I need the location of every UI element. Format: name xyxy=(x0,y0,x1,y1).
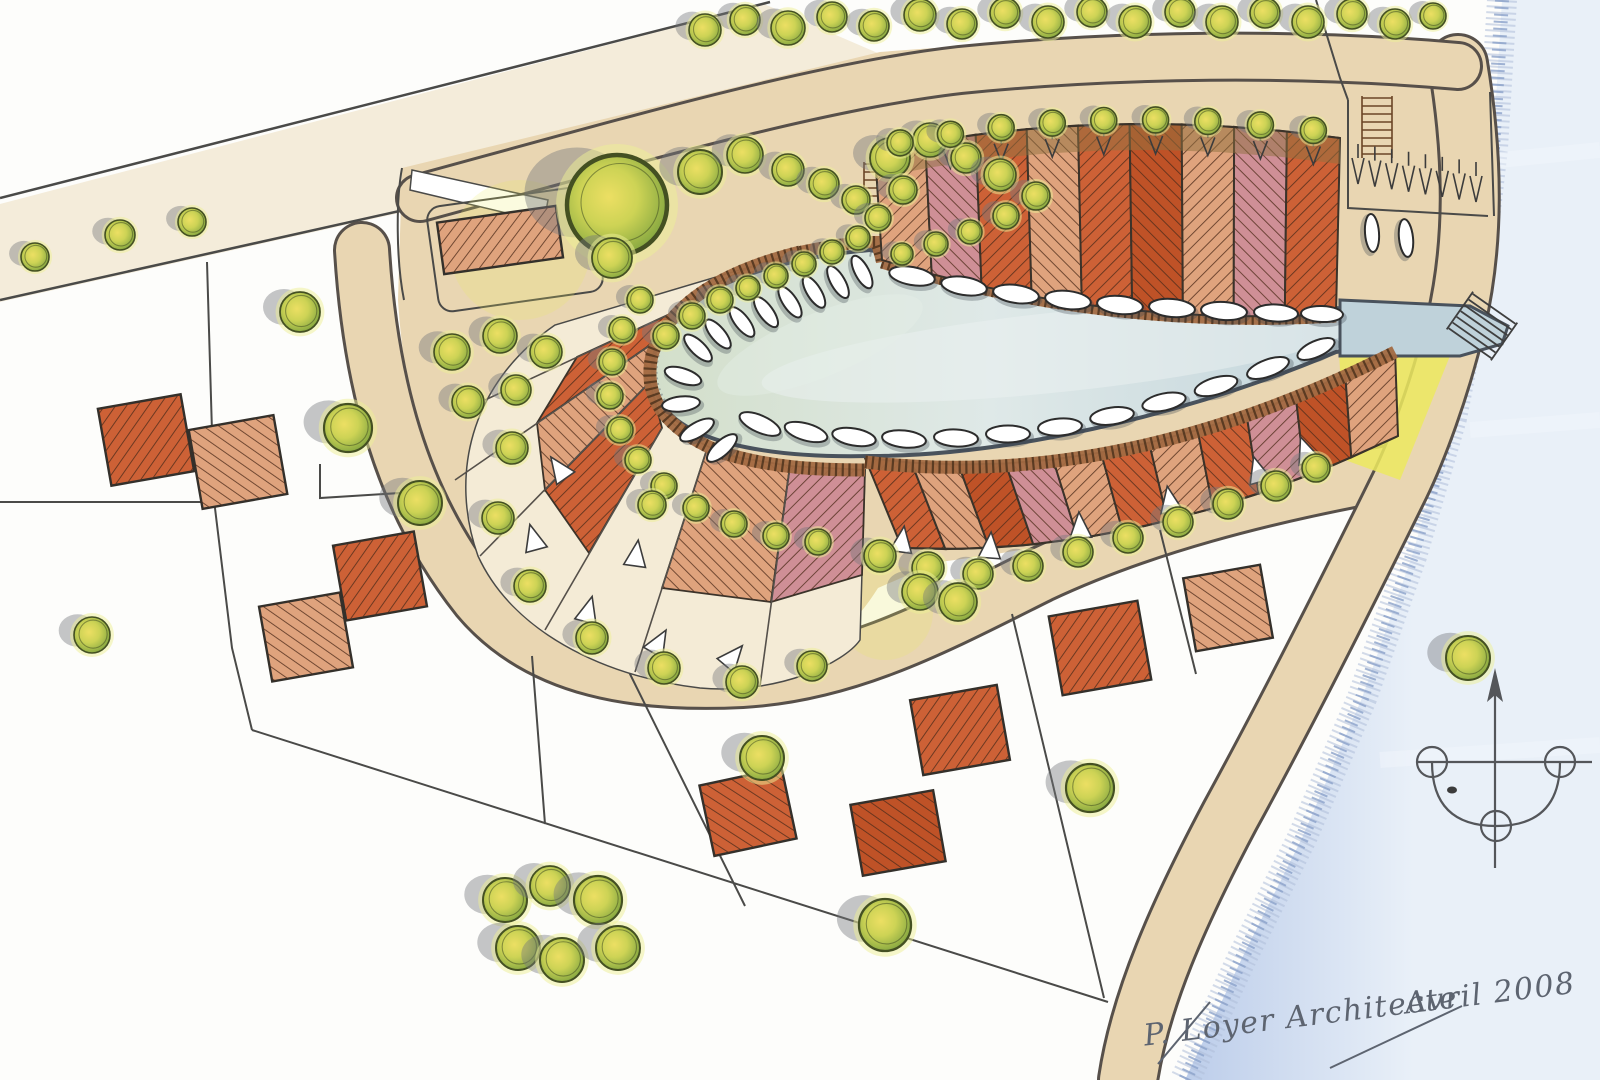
detached-house xyxy=(259,592,353,681)
detached-house xyxy=(910,685,1010,775)
detached-house xyxy=(1049,601,1152,695)
detached-house xyxy=(98,394,194,485)
site-plan-canvas: P. Loyer Architecte Avril 2008 xyxy=(0,0,1600,1080)
compass-ink-blot xyxy=(1447,787,1457,794)
detached-house xyxy=(699,768,796,856)
detached-house xyxy=(333,531,427,620)
site-plan-sheet: P. Loyer Architecte Avril 2008 xyxy=(0,0,1600,1080)
boat xyxy=(986,426,1034,448)
detached-house xyxy=(189,415,288,509)
detached-house xyxy=(850,790,945,875)
detached-house xyxy=(1183,565,1273,651)
